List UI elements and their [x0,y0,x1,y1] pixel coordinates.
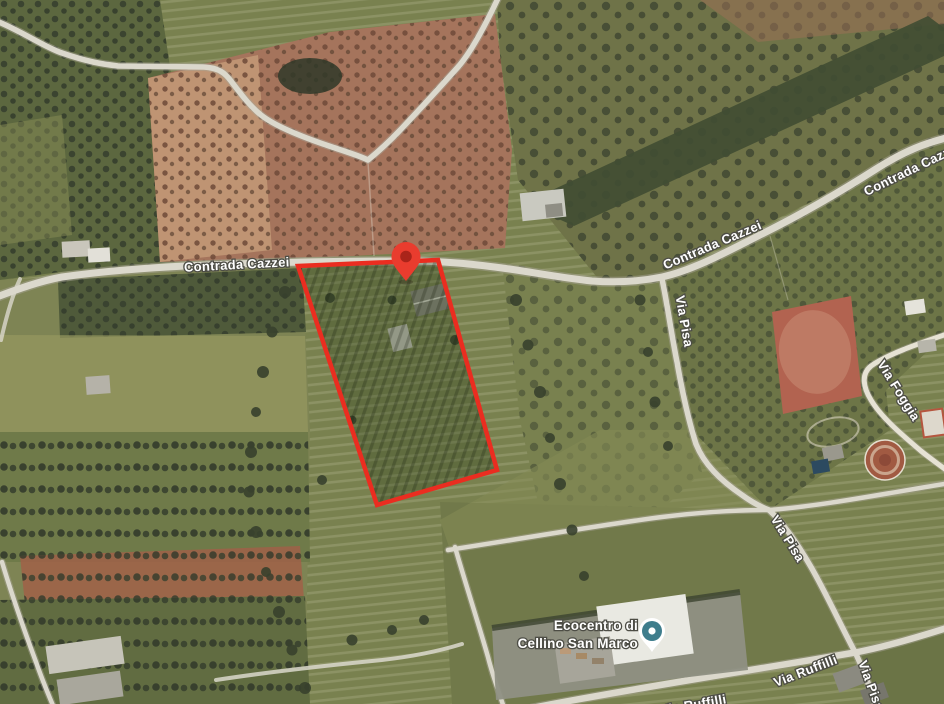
poi-label-line1: Ecocentro di [554,618,638,633]
map-viewport[interactable]: Contrada Cazzei Contrada Cazzei Contrada… [0,0,944,704]
circular-field-feature [865,440,905,480]
poi-label-line2: Cellino San Marco [518,636,638,651]
satellite-map[interactable]: Contrada Cazzei Contrada Cazzei Contrada… [0,0,944,704]
